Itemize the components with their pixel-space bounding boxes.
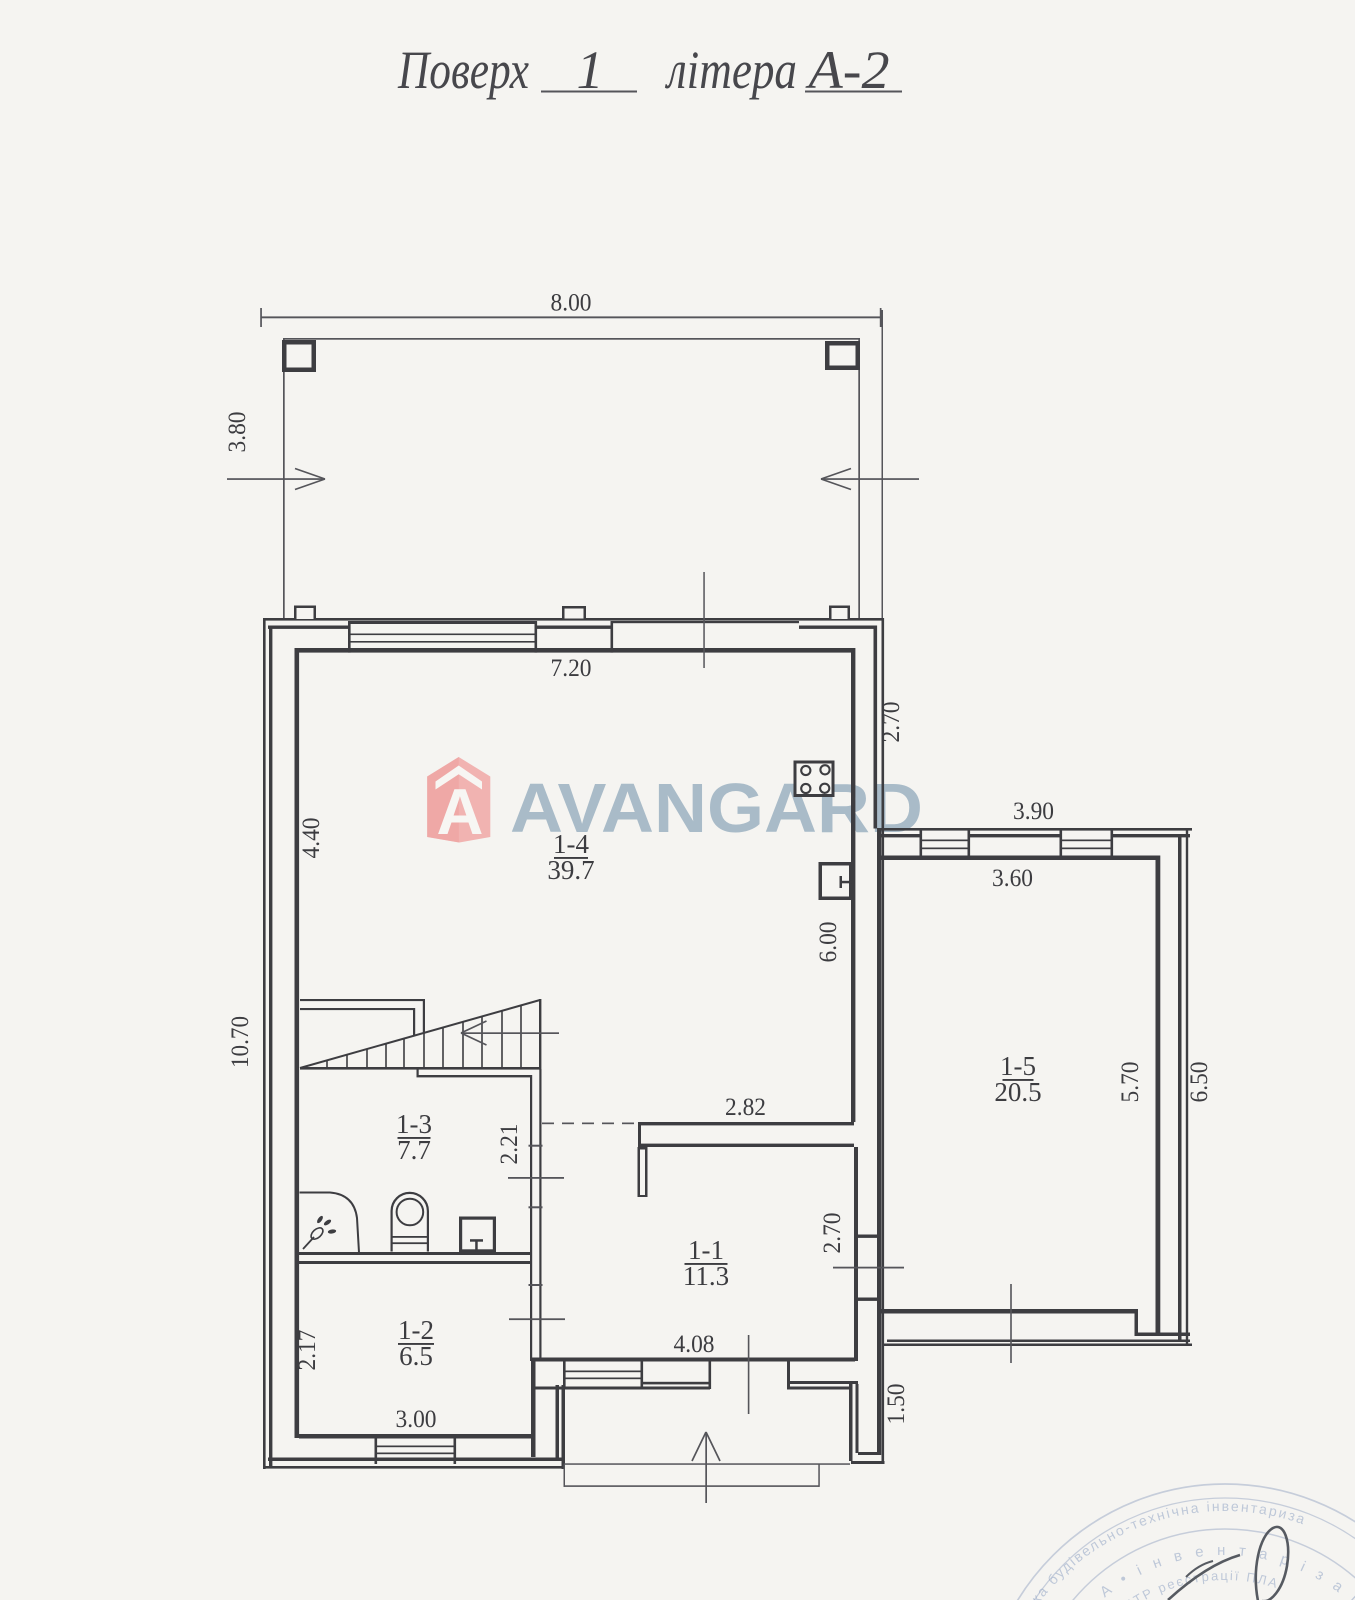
svg-text:39.7: 39.7 xyxy=(547,855,594,885)
svg-text:2.82: 2.82 xyxy=(725,1094,766,1121)
svg-text:2.17: 2.17 xyxy=(294,1330,321,1371)
svg-text:6.5: 6.5 xyxy=(399,1341,433,1371)
svg-text:4.08: 4.08 xyxy=(674,1331,715,1358)
svg-text:6.00: 6.00 xyxy=(815,922,842,963)
svg-text:10.70: 10.70 xyxy=(227,1016,254,1068)
svg-text:Поверх: Поверх xyxy=(397,40,529,100)
svg-text:2.70: 2.70 xyxy=(878,702,905,743)
svg-text:літера: літера xyxy=(664,40,797,100)
svg-text:1.50: 1.50 xyxy=(883,1384,910,1425)
svg-text:4.40: 4.40 xyxy=(298,818,325,859)
svg-text:1: 1 xyxy=(577,40,604,100)
svg-text:8.00: 8.00 xyxy=(551,290,592,317)
svg-text:20.5: 20.5 xyxy=(994,1077,1041,1107)
svg-text:3.00: 3.00 xyxy=(396,1406,437,1433)
svg-text:2.21: 2.21 xyxy=(496,1124,523,1165)
svg-text:11.3: 11.3 xyxy=(683,1261,729,1291)
svg-text:7.7: 7.7 xyxy=(397,1135,431,1165)
svg-text:5.70: 5.70 xyxy=(1117,1062,1144,1103)
svg-text:2.70: 2.70 xyxy=(819,1213,846,1254)
svg-text:3.80: 3.80 xyxy=(224,412,251,453)
svg-text:6.50: 6.50 xyxy=(1186,1062,1213,1103)
svg-text:А-2: А-2 xyxy=(805,40,889,100)
svg-text:3.60: 3.60 xyxy=(992,865,1033,892)
svg-text:3.90: 3.90 xyxy=(1013,798,1054,825)
svg-text:7.20: 7.20 xyxy=(551,655,592,682)
svg-text:A: A xyxy=(437,775,484,848)
